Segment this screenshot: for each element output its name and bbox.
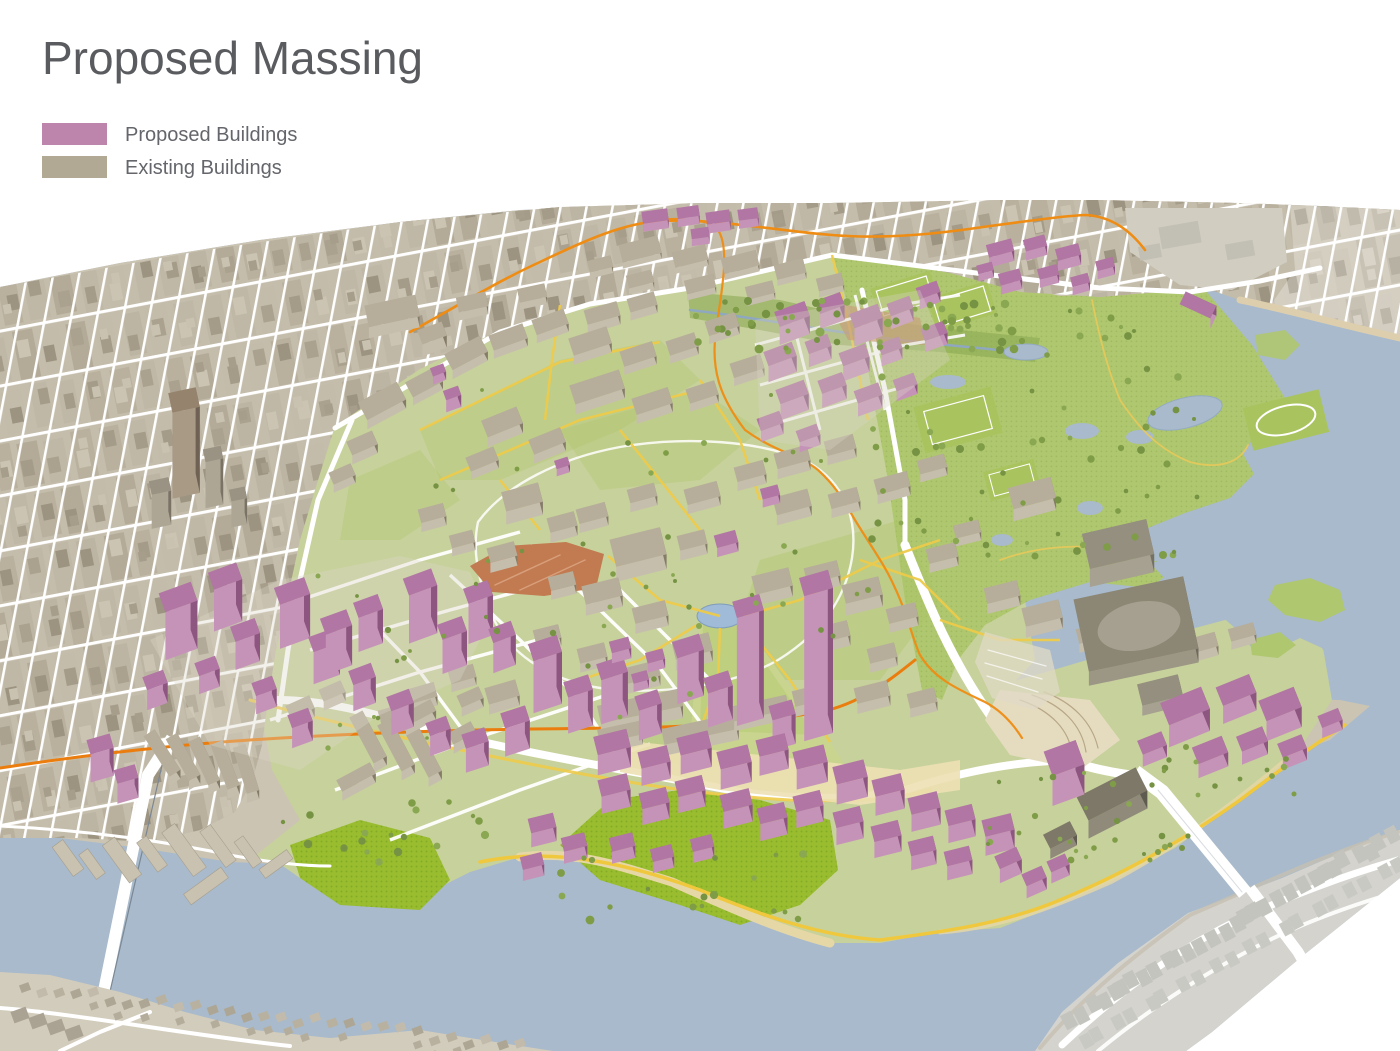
- svg-text:Proposed Massing: Proposed Massing: [42, 32, 423, 84]
- svg-text:Existing Buildings: Existing Buildings: [125, 157, 282, 179]
- svg-text:Proposed Buildings: Proposed Buildings: [125, 124, 297, 146]
